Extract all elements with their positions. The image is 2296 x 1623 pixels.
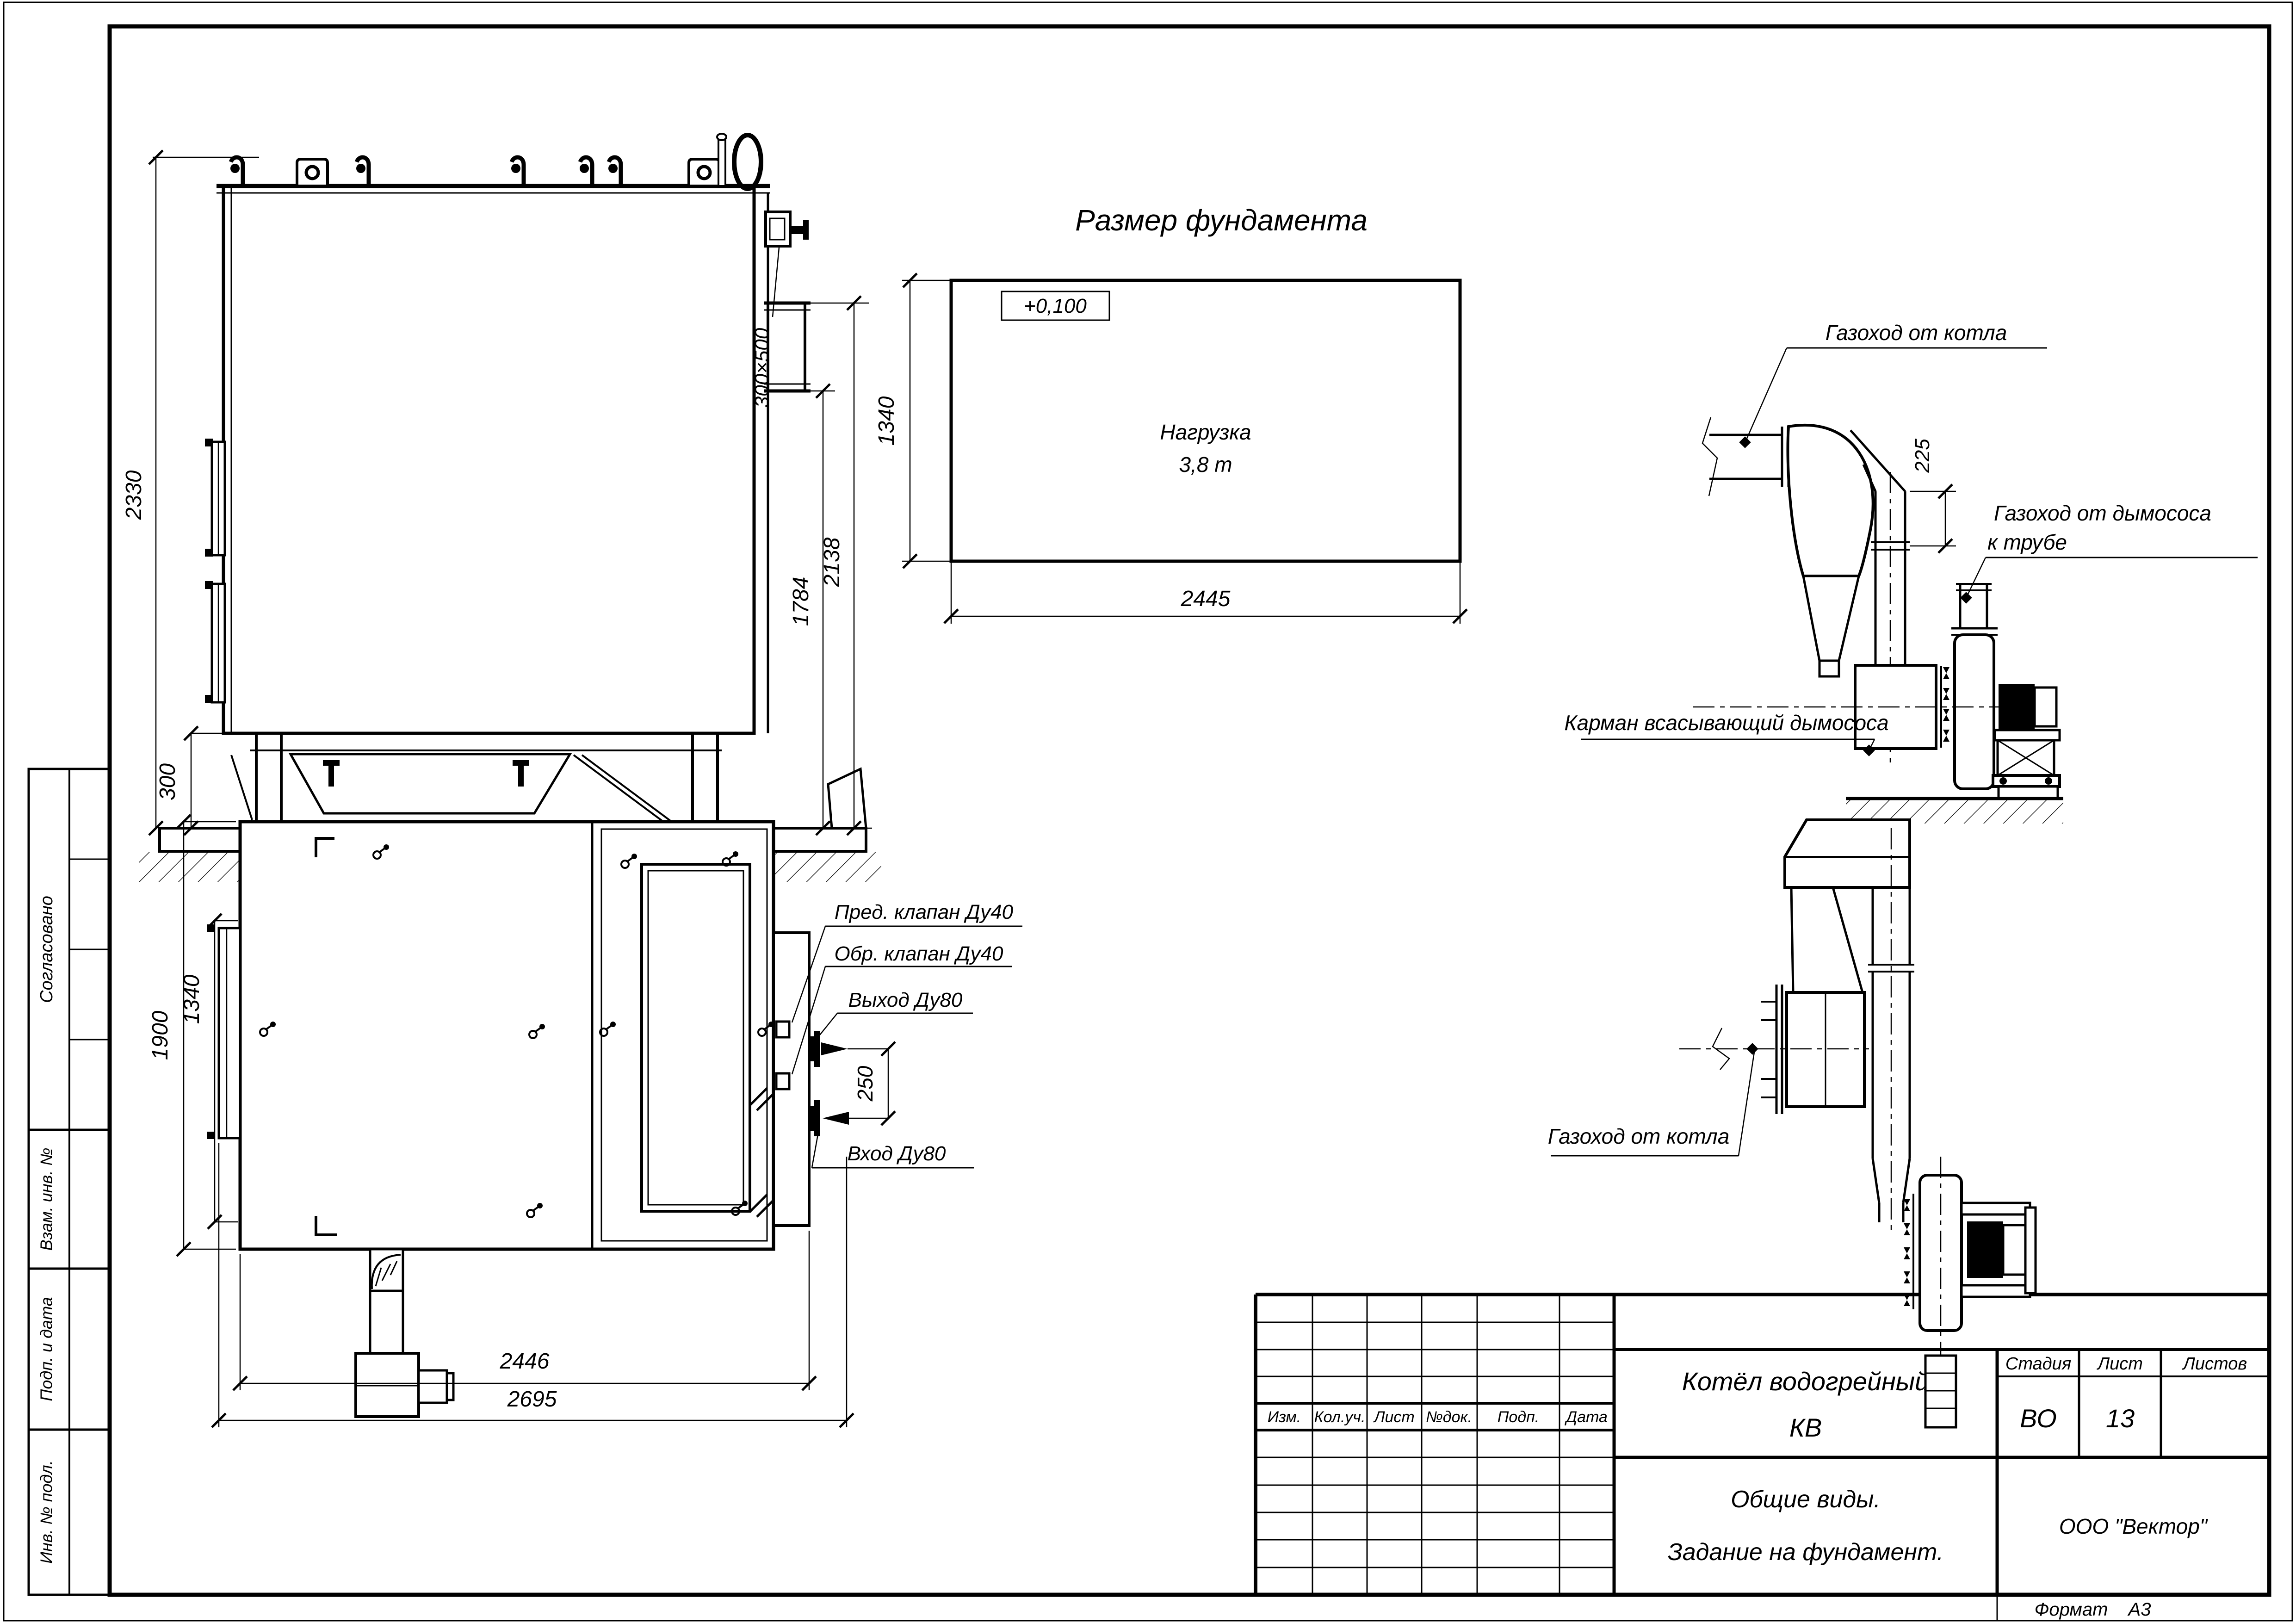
- sheets-label: Листов: [2182, 1354, 2247, 1374]
- drawing-sheet: Формат А3 Согласовано Взам. инв. № Подп.…: [0, 0, 2296, 1623]
- drawing-canvas: Формат А3 Согласовано Взам. инв. № Подп.…: [0, 0, 2296, 1623]
- dim-1900: 1900: [148, 1010, 173, 1060]
- label-check-valve: Обр. клапан Ду40: [835, 942, 1004, 965]
- label-outlet: Выход Ду80: [848, 989, 963, 1011]
- company-name: ООО "Вектор": [2059, 1514, 2209, 1538]
- foundation-load1: Нагрузка: [1160, 420, 1251, 444]
- dim-250: 250: [853, 1065, 877, 1102]
- stamp-inv: Инв. № подл.: [37, 1460, 56, 1563]
- sheet-value: 13: [2106, 1404, 2135, 1433]
- format-label: Формат: [2035, 1599, 2108, 1620]
- doc-subtitle-line1: Общие виды.: [1731, 1486, 1881, 1513]
- foundation-title: Размер фундамента: [1075, 204, 1368, 237]
- dim-1784: 1784: [789, 577, 813, 626]
- sheet-label: Лист: [2096, 1354, 2143, 1374]
- duct-label-chimney2: к трубе: [1987, 530, 2067, 554]
- svg-text:№док.: №док.: [1426, 1408, 1472, 1426]
- foundation-load2: 3,8 т: [1179, 452, 1232, 477]
- stage-value: ВО: [2020, 1404, 2057, 1433]
- svg-text:Кол.уч.: Кол.уч.: [1314, 1408, 1366, 1426]
- dim-2138: 2138: [820, 537, 844, 587]
- duct-plan-label-boiler: Газоход от котла: [1548, 1124, 1730, 1148]
- doc-subtitle-line2: Задание на фундамент.: [1668, 1539, 1943, 1566]
- duct-label-chimney1: Газоход от дымососа: [1994, 501, 2211, 525]
- label-safety-valve: Пред. клапан Ду40: [835, 901, 1014, 923]
- svg-text:Подп.: Подп.: [1498, 1408, 1540, 1426]
- stamp-agreed: Согласовано: [37, 896, 56, 1003]
- dim-1340-foundation: 1340: [874, 396, 899, 446]
- doc-title-line2: КВ: [1789, 1413, 1822, 1442]
- dim-1340-plan: 1340: [179, 974, 204, 1024]
- svg-text:Лист: Лист: [1373, 1408, 1415, 1426]
- dim-2445: 2445: [1181, 587, 1231, 611]
- dim-2330: 2330: [122, 470, 146, 520]
- stamp-podp: Подп. и дата: [37, 1297, 56, 1401]
- duct-label-boiler: Газоход от котла: [1826, 321, 2007, 345]
- label-inlet: Вход Ду80: [848, 1142, 946, 1165]
- doc-title-line1: Котёл водогрейный: [1682, 1367, 1930, 1396]
- stage-label: Стадия: [2005, 1354, 2071, 1374]
- dim-2446: 2446: [500, 1349, 550, 1374]
- foundation-level: +0,100: [1024, 295, 1087, 317]
- format-value: А3: [2128, 1599, 2151, 1620]
- dim-2695: 2695: [507, 1387, 557, 1412]
- svg-text:Изм.: Изм.: [1268, 1408, 1301, 1426]
- duct-label-pocket: Карман всасывающий дымососа: [1564, 711, 1888, 735]
- dim-300: 300: [155, 763, 180, 800]
- dim-225: 225: [1911, 439, 1934, 473]
- svg-text:Дата: Дата: [1564, 1408, 1608, 1426]
- dim-flue: 300×500: [751, 328, 774, 408]
- stamp-vzam: Взам. инв. №: [37, 1148, 56, 1251]
